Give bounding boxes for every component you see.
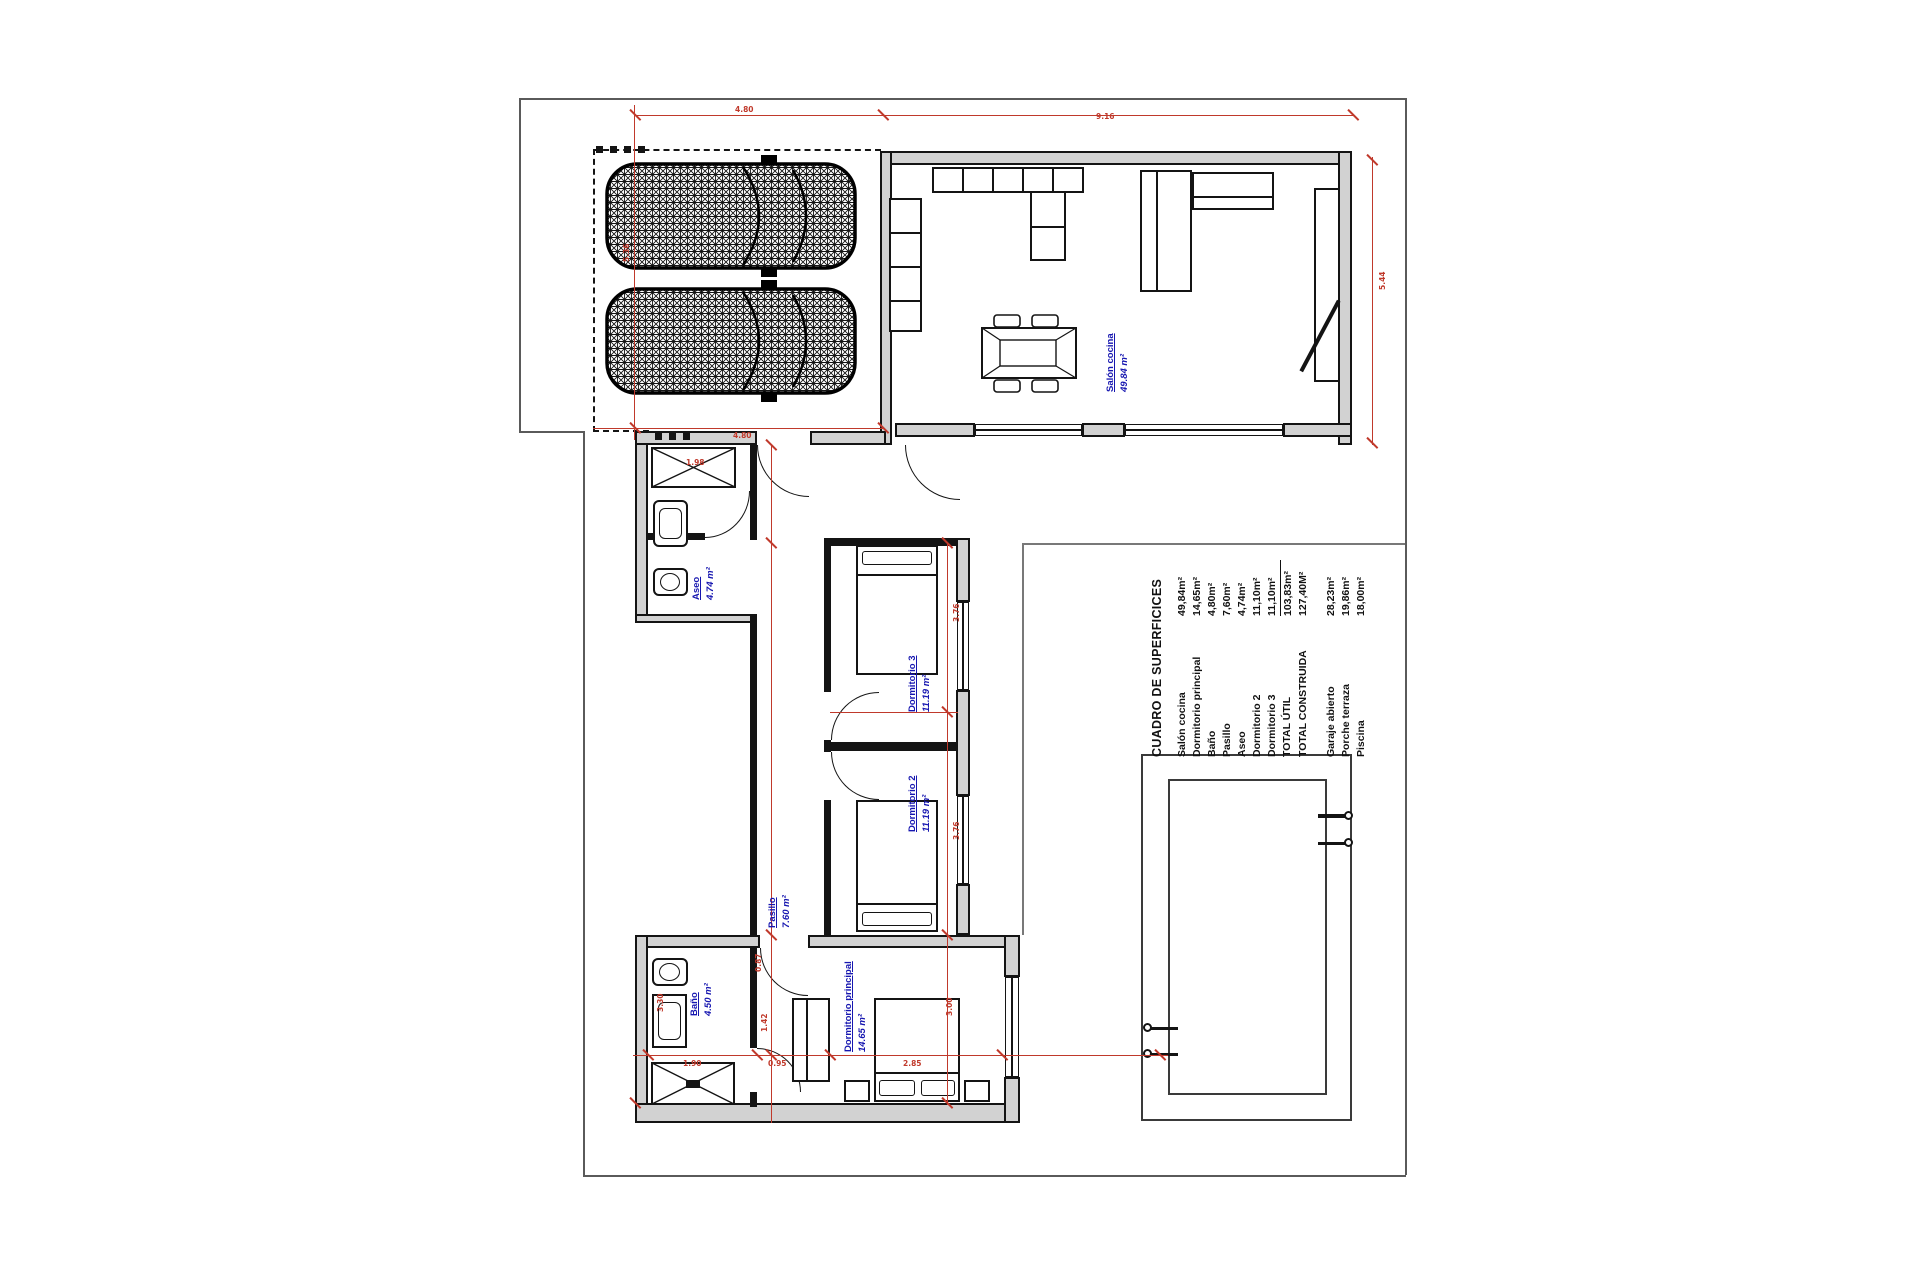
wall-pillar (683, 433, 690, 440)
row-value: 7,60m² (1220, 560, 1235, 616)
toilet-bowl (660, 573, 680, 591)
table-row-total-construida: TOTAL CONSTRUIDA127,40M² (1296, 560, 1311, 757)
sofa-seat-line (1156, 172, 1158, 290)
table-row-total-util: TOTAL ÚTIL103,83m² (1280, 560, 1296, 757)
bed-pillow (921, 1080, 955, 1096)
table-row: Piscina18,00m² (1354, 560, 1369, 757)
site-border-notch (519, 431, 584, 433)
salon-door-arc (905, 445, 960, 500)
room-label-principal: Dormitorio principal 14.65 m² (842, 961, 870, 1052)
bed-pillow (862, 551, 932, 565)
wall-segment (824, 740, 831, 752)
dimension-label: 1.42 (760, 1013, 769, 1032)
table-row: Porche terraza19,86m² (1339, 560, 1354, 757)
dining-set (980, 314, 1080, 394)
dimension-label: 1.90 (683, 1059, 702, 1068)
site-border-top (519, 98, 1405, 100)
room-area: 11.19 m² (920, 656, 934, 712)
window (1125, 424, 1283, 436)
cabinet-divider (890, 232, 921, 234)
wall-segment (635, 935, 648, 1123)
floor-plan: 4.80 9.16 5.36 4.80 1.98 5.44 3.76 3.76 … (0, 0, 1920, 1280)
row-value: 103,83m² (1280, 560, 1296, 616)
wall-segment (808, 935, 1020, 948)
row-label: Dormitorio principal (1190, 616, 1205, 757)
surface-table: CUADRO DE SUPERFICICES Salón cocina49,84… (1150, 560, 1369, 757)
dimension-label: 2.85 (903, 1059, 922, 1068)
window (957, 796, 969, 884)
wall-segment (956, 884, 970, 935)
dormitorio2-door-arc (831, 752, 879, 800)
principal-door-arc (760, 948, 808, 996)
wall-pillar (669, 433, 676, 440)
room-name: Dormitorio 3 (906, 656, 920, 712)
dormitorio3-door-arc (831, 692, 879, 740)
wall-segment (831, 742, 957, 751)
room-label-banio: Baño 4.50 m² (688, 983, 716, 1016)
sofa (1140, 170, 1192, 292)
wall-segment (824, 800, 831, 935)
nightstand (844, 1080, 870, 1102)
room-label-dormitorio3: Dormitorio 3 11.19 m² (906, 656, 934, 712)
row-value: 11,10m² (1250, 560, 1265, 616)
table-row: Dormitorio 311,10m² (1265, 560, 1280, 757)
dimension-line (633, 1055, 1168, 1056)
window (1005, 977, 1019, 1077)
room-name: Pasillo (766, 895, 780, 928)
wall-segment (880, 151, 1352, 165)
dimension-label: 0.95 (768, 1059, 787, 1068)
window (975, 424, 1082, 436)
table-row: Dormitorio principal14,65m² (1190, 560, 1205, 757)
dimension-label: 4.80 (733, 431, 752, 440)
wardrobe-divider (806, 1000, 808, 1080)
site-border-right (1405, 98, 1407, 1175)
pool-ladder-knob (1344, 811, 1353, 820)
room-name: Salón cocina (1104, 333, 1118, 392)
room-label-aseo: Aseo 4.74 m² (690, 567, 718, 600)
row-value: 19,86m² (1339, 560, 1354, 616)
room-name: Baño (688, 983, 702, 1016)
sofa (1192, 172, 1274, 210)
wall-segment (750, 1092, 757, 1107)
dimension-line (771, 445, 772, 1123)
bed-fold-line (857, 574, 937, 576)
row-label: Dormitorio 2 (1250, 616, 1265, 757)
aseo-door-arc (705, 491, 750, 538)
wall-segment (1338, 151, 1352, 445)
wall-segment (824, 546, 831, 692)
table-row: Pasillo7,60m² (1220, 560, 1235, 757)
cabinet-divider (890, 300, 921, 302)
table-row: Salón cocina49,84m² (1175, 560, 1190, 757)
site-border-bottom (583, 1175, 1406, 1177)
room-area: 11.19 m² (920, 776, 934, 832)
wall-segment (956, 538, 970, 602)
pool-ladder-knob (1143, 1023, 1152, 1032)
wall-segment (1283, 423, 1352, 437)
counter-divider (992, 168, 994, 192)
room-label-salon: Salón cocina 49.84 m² (1104, 333, 1132, 392)
sink-basin (659, 508, 682, 539)
row-label: Dormitorio 3 (1265, 616, 1280, 757)
cabinet-divider (890, 266, 921, 268)
dimension-label: 5.44 (1378, 271, 1387, 290)
dimension-label: 0.87 (754, 953, 763, 972)
room-area: 14.65 m² (856, 961, 870, 1052)
row-value: 28,23m² (1324, 560, 1339, 616)
wall-segment (635, 431, 648, 621)
dimension-label: 3.76 (952, 603, 961, 622)
dimension-line (1372, 157, 1373, 445)
pool-ladder-bar (1148, 1027, 1178, 1030)
bed-pillow (862, 912, 932, 926)
row-label: Baño (1205, 616, 1220, 757)
terrace-line (1022, 543, 1024, 935)
dimension-label: 3.76 (952, 821, 961, 840)
table-row: Aseo4,74m² (1235, 560, 1250, 757)
row-label: Garaje abierto (1324, 616, 1339, 757)
dimension-label: 1.98 (686, 458, 705, 467)
table-gap (1311, 560, 1324, 757)
surface-table-title: CUADRO DE SUPERFICICES (1150, 560, 1164, 757)
row-value: 18,00m² (1354, 560, 1369, 616)
room-name: Aseo (690, 567, 704, 600)
nightstand (964, 1080, 990, 1102)
room-area: 49.84 m² (1118, 333, 1132, 392)
kitchen-cabinets (889, 198, 922, 332)
pool-ladder-knob (1344, 838, 1353, 847)
wall-segment (750, 614, 757, 935)
row-label: Piscina (1354, 616, 1369, 757)
dimension-label: 3.00 (945, 997, 954, 1016)
row-label: Aseo (1235, 616, 1250, 757)
bed-pillow (879, 1080, 915, 1096)
row-value: 127,40M² (1296, 560, 1311, 616)
row-label: TOTAL ÚTIL (1280, 616, 1296, 757)
dimension-label: 5.36 (622, 243, 631, 262)
dimension-label: 9.16 (1096, 112, 1115, 121)
pool-ladder-knob (1143, 1049, 1152, 1058)
dimension-label: 4.80 (735, 105, 754, 114)
dimension-label: 3.30 (656, 993, 665, 1012)
counter-divider (1052, 168, 1054, 192)
row-value: 14,65m² (1190, 560, 1205, 616)
row-value: 11,10m² (1265, 560, 1280, 616)
row-label: Pasillo (1220, 616, 1235, 757)
room-label-pasillo: Pasillo 7.60 m² (766, 895, 794, 928)
wall-segment (635, 614, 757, 623)
row-value: 4,80m² (1205, 560, 1220, 616)
wall-segment (1082, 423, 1125, 437)
terrace-line (1022, 543, 1405, 545)
dimension-line (947, 543, 948, 1105)
table-row: Garaje abierto28,23m² (1324, 560, 1339, 757)
parked-cars (593, 150, 880, 431)
wall-segment (810, 431, 886, 445)
row-value: 4,74m² (1235, 560, 1250, 616)
wall-segment (895, 423, 975, 437)
car-2 (607, 280, 855, 402)
room-area: 7.60 m² (780, 895, 794, 928)
entry-door-arc (757, 445, 809, 497)
room-name: Dormitorio principal (842, 961, 856, 1052)
shower-tray (651, 447, 736, 488)
counter-divider (962, 168, 964, 192)
wall-pillar (655, 433, 662, 440)
wall-segment (750, 445, 757, 540)
tv-unit (1314, 188, 1340, 382)
dimension-line (830, 712, 958, 713)
table-row: Dormitorio 211,10m² (1250, 560, 1265, 757)
car-1 (607, 155, 855, 277)
wardrobe (792, 998, 830, 1082)
wall-segment (1004, 1077, 1020, 1123)
row-label: Salón cocina (1175, 616, 1190, 757)
counter-divider (1032, 226, 1064, 228)
room-area: 4.50 m² (702, 983, 716, 1016)
room-name: Dormitorio 2 (906, 776, 920, 832)
dimension-line (634, 105, 635, 440)
counter-divider (1022, 168, 1024, 192)
bed-fold-line (857, 903, 937, 905)
pool-inner (1168, 779, 1327, 1095)
site-border-left-lower (583, 431, 585, 1175)
kitchen-counter (932, 167, 1084, 193)
site-border-left-upper (519, 98, 521, 432)
shower-tray (651, 1062, 735, 1105)
room-label-dormitorio2: Dormitorio 2 11.19 m² (906, 776, 934, 832)
toilet-bowl (659, 963, 680, 981)
row-label: Porche terraza (1339, 616, 1354, 757)
room-area: 4.74 m² (704, 567, 718, 600)
wall-segment (635, 1103, 1020, 1123)
dimension-line (635, 115, 1353, 116)
row-label: TOTAL CONSTRUIDA (1296, 616, 1311, 757)
wall-segment (1004, 935, 1020, 977)
table-row: Baño4,80m² (1205, 560, 1220, 757)
wall-segment (635, 935, 760, 948)
row-value: 49,84m² (1175, 560, 1190, 616)
sofa-seat-line (1194, 196, 1272, 198)
wall-segment (956, 690, 970, 796)
